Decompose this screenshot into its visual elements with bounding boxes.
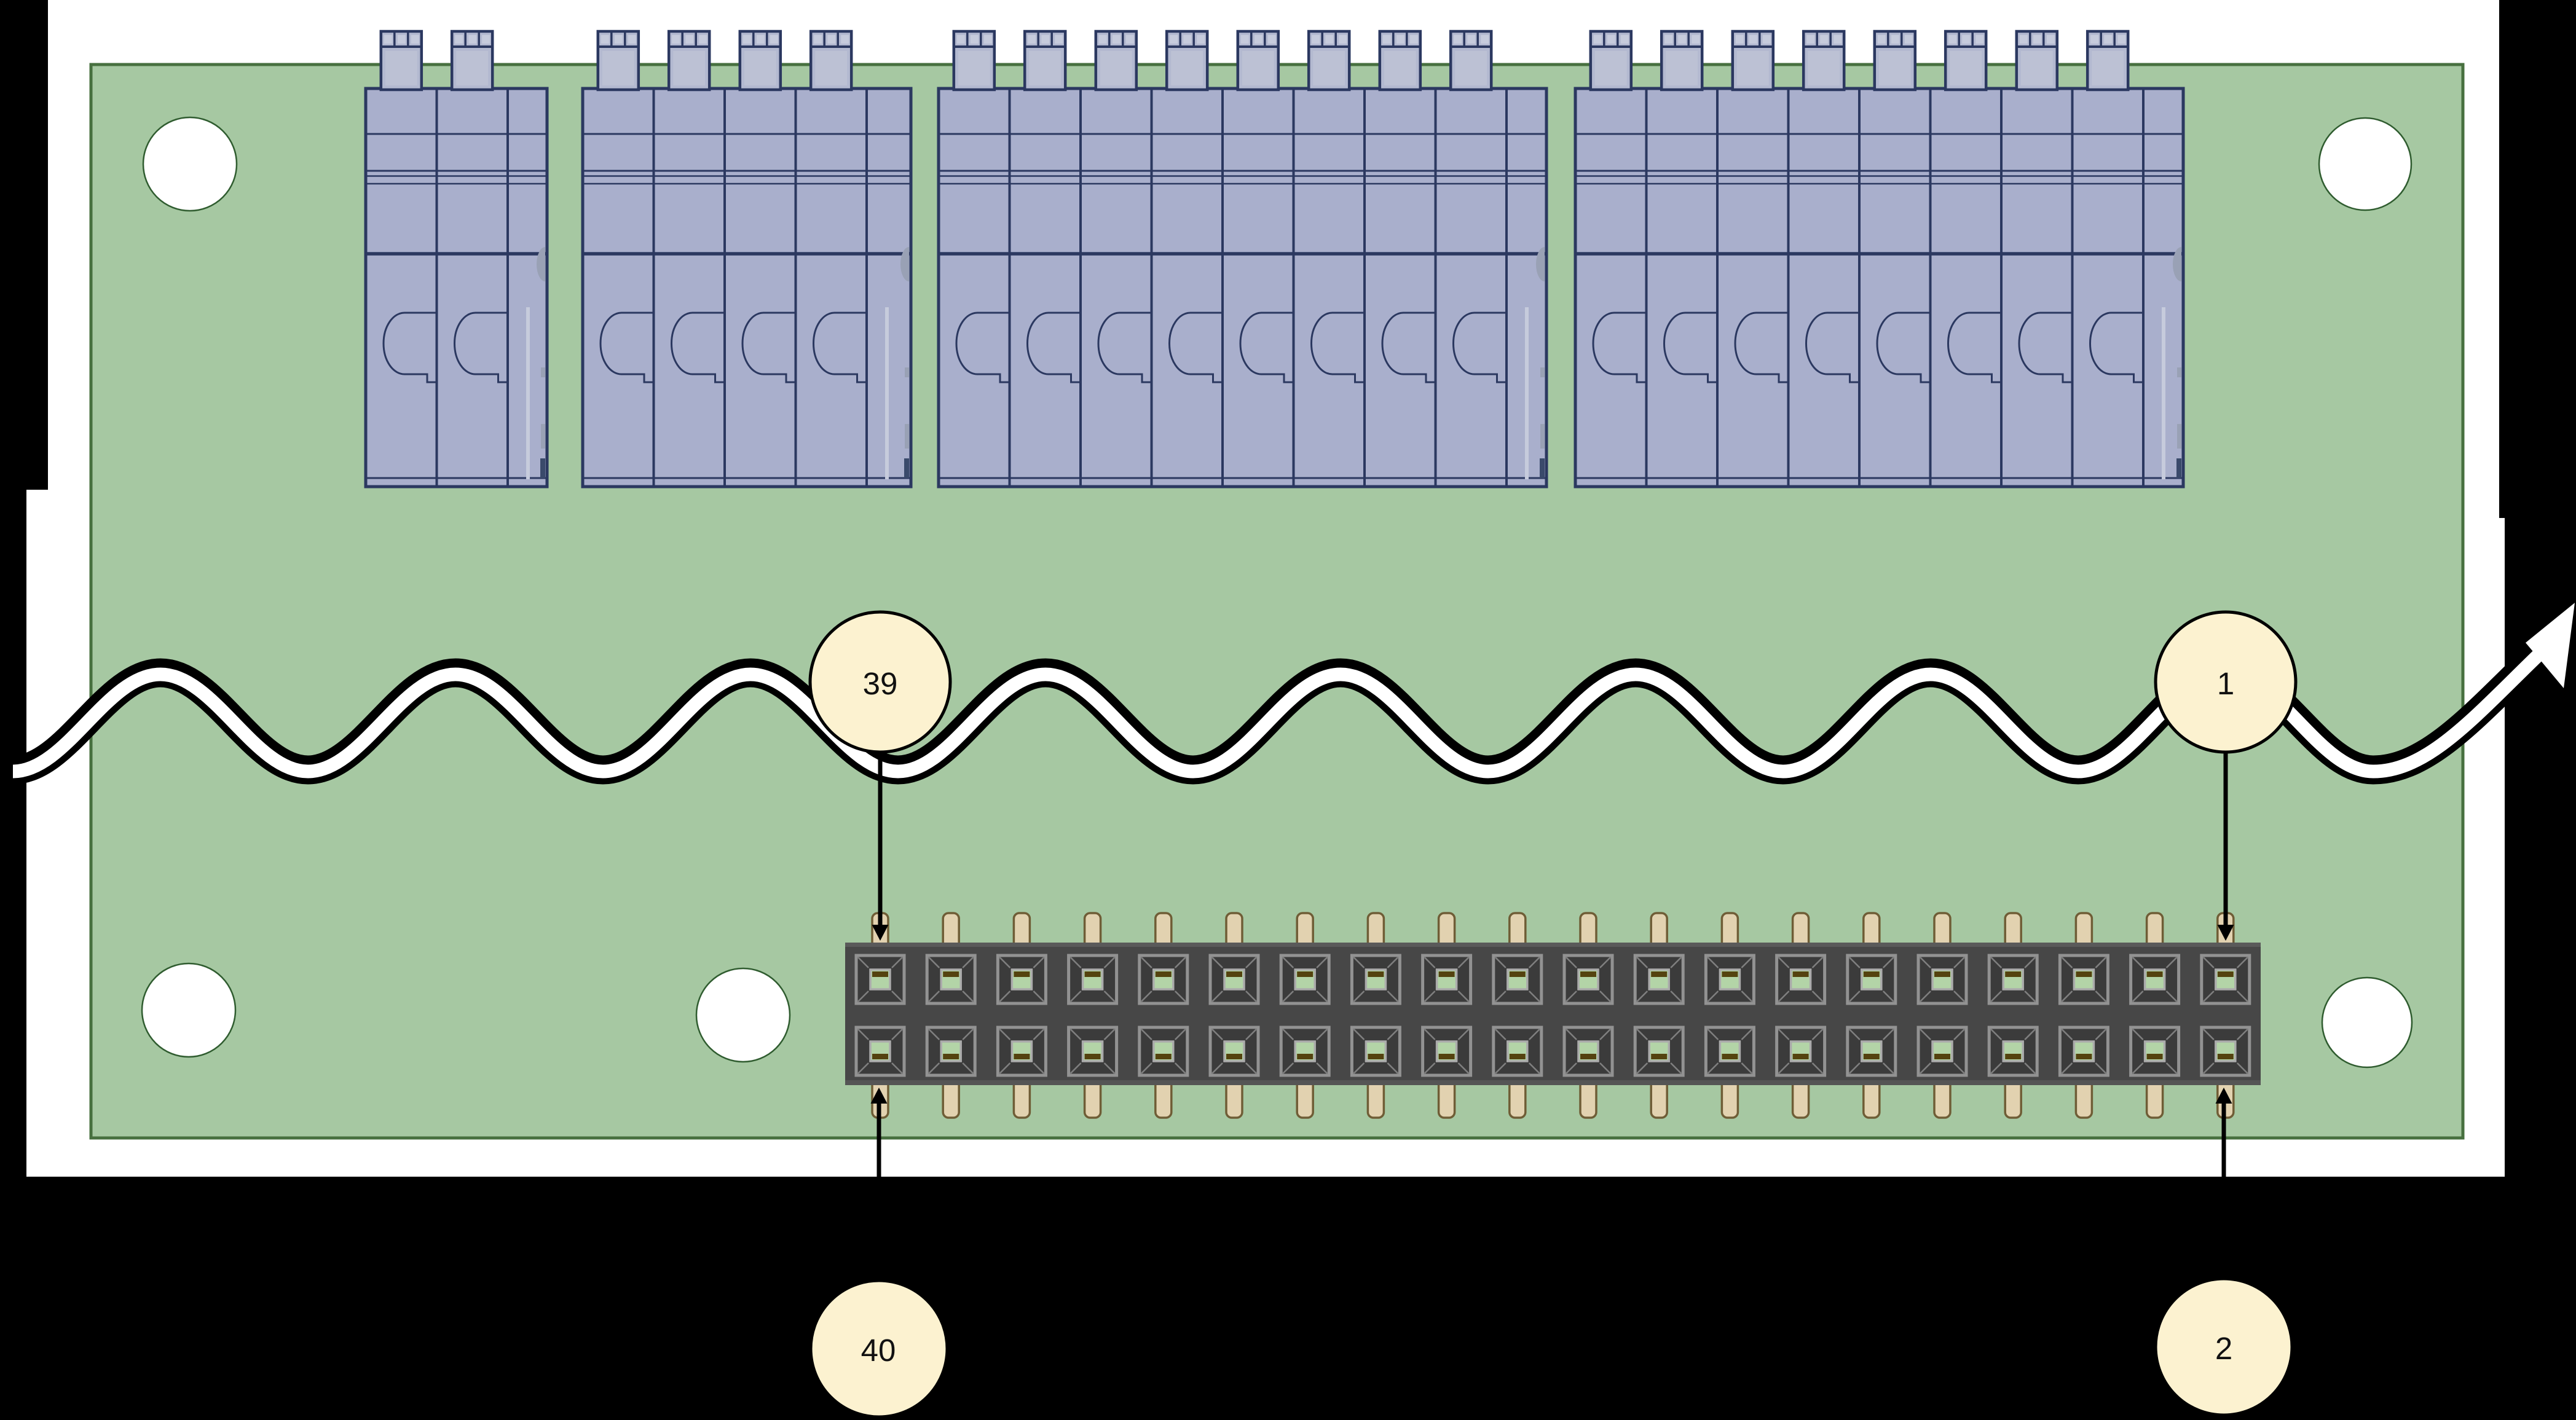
svg-text:40: 40 <box>861 1333 896 1368</box>
svg-text:2: 2 <box>2215 1331 2232 1366</box>
svg-text:39: 39 <box>863 666 898 701</box>
svg-text:1: 1 <box>2217 666 2234 701</box>
